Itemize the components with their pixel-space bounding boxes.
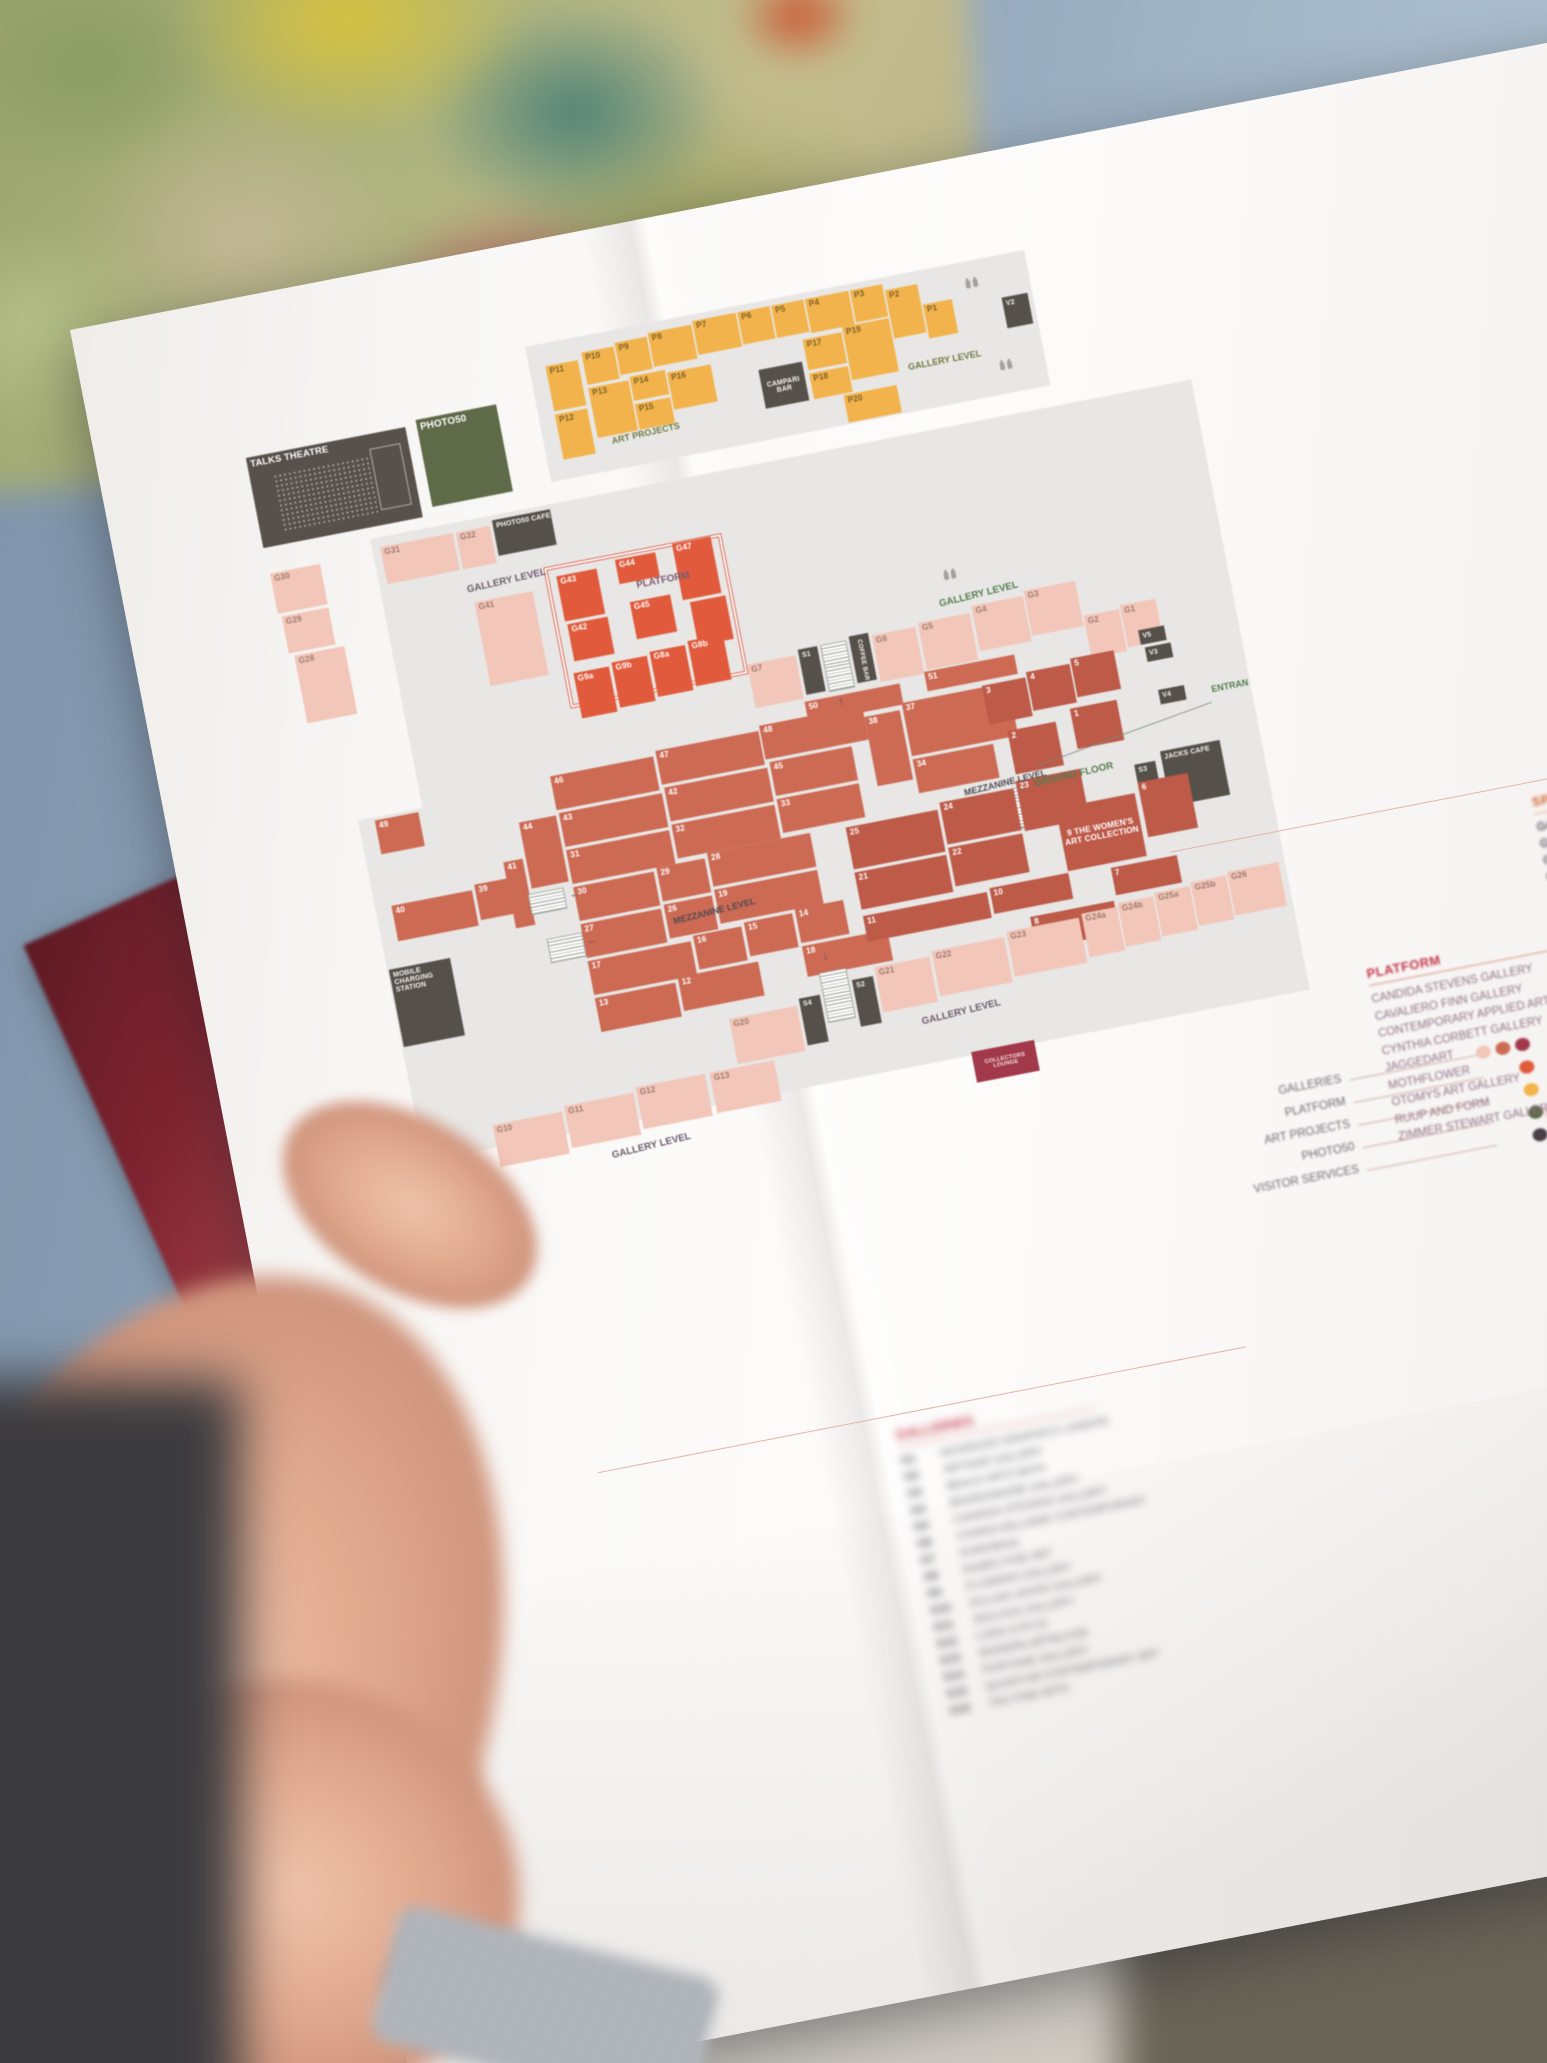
booth-campari-bar: CAMPARI BAR xyxy=(758,362,809,409)
booth-p19: P19 xyxy=(842,318,899,380)
booth-g29: G29 xyxy=(282,607,336,653)
booth-p5: P5 xyxy=(771,300,809,338)
booth-g2: G2 xyxy=(1084,609,1128,658)
booth-g4: G4 xyxy=(971,596,1031,651)
booth-g32: G32 xyxy=(456,526,497,570)
booth-g7: G7 xyxy=(747,655,804,708)
dark-corner xyxy=(0,1380,240,2063)
booth-g30: G30 xyxy=(270,564,328,614)
photo-scene: { "scene": { "wall_color": "#8ea2b6", "b… xyxy=(0,0,1547,2063)
legend-color-dot xyxy=(1531,1127,1547,1143)
booth-p3: P3 xyxy=(850,284,888,322)
floor-plan-map: TALKS THEATREPHOTO50P11P12P10P9P8P7P6P5P… xyxy=(228,230,1318,1216)
booth-talks-theatre: TALKS THEATRE xyxy=(246,427,423,548)
booth-2: 2 xyxy=(1007,722,1064,775)
booth-g42: G42 xyxy=(567,617,614,662)
booth-3: 3 xyxy=(982,677,1033,724)
booth-p10: P10 xyxy=(581,346,619,384)
booth-g5: G5 xyxy=(918,613,979,670)
booth-p1: P1 xyxy=(923,299,959,338)
booth-g43: G43 xyxy=(556,569,605,622)
booth-p6: P6 xyxy=(737,306,775,344)
booth-4: 4 xyxy=(1026,664,1077,711)
sponsors-list: SPONSORS G47ARTSG9BTHG8BKG9AG45G43 xyxy=(1531,745,1547,922)
booth-g28: G28 xyxy=(294,646,357,723)
booth-g45: G45 xyxy=(630,594,677,639)
map-label: ← xyxy=(1015,779,1029,794)
booth-6: 6 xyxy=(1138,773,1199,837)
legend-dots xyxy=(1531,1127,1547,1143)
booth-v2: V2 xyxy=(1002,293,1034,329)
map-label: ← xyxy=(568,886,581,900)
booth-p9: P9 xyxy=(614,337,652,375)
booth-g6: G6 xyxy=(872,627,925,682)
booth-g3: G3 xyxy=(1023,581,1083,636)
map-label: ← xyxy=(586,933,599,947)
theatre-seats xyxy=(272,456,378,531)
booth-photo50: PHOTO50 xyxy=(416,404,513,507)
booth-5: 5 xyxy=(1070,650,1121,697)
